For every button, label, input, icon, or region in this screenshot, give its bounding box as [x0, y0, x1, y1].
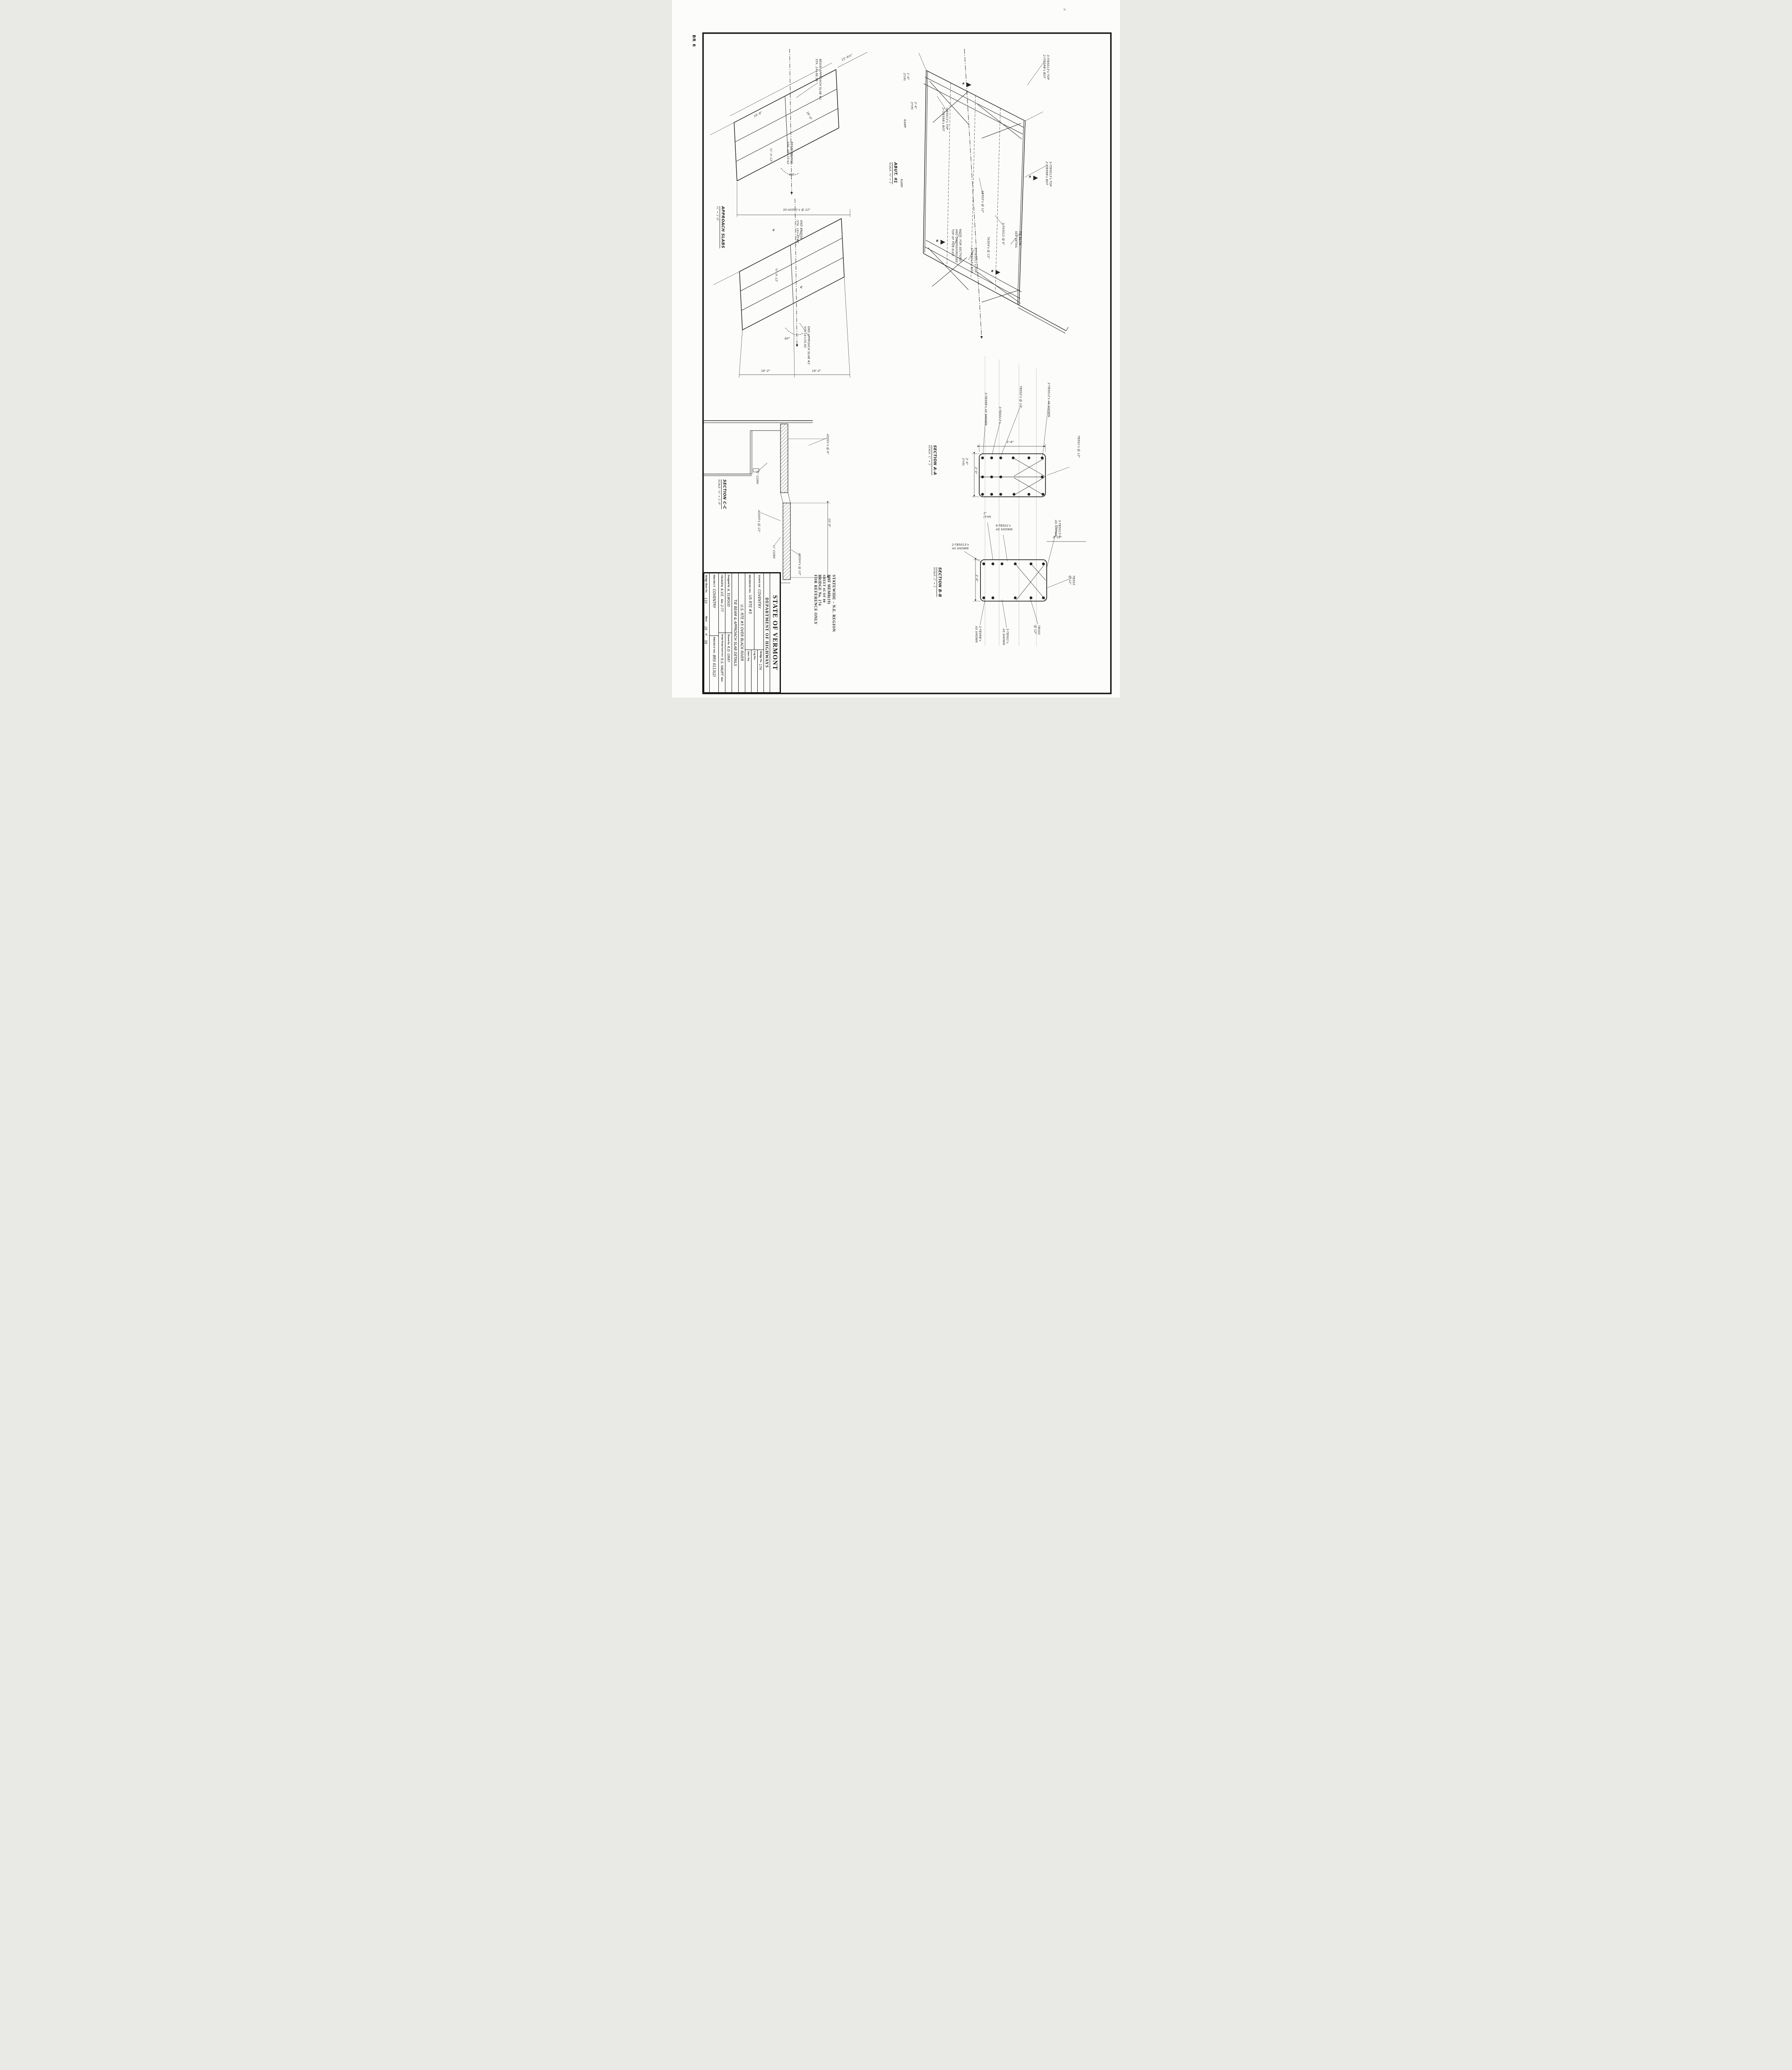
department-name: DEPARTMENT OF HIGHWAYS — [765, 598, 769, 668]
title-block: STATE OF VERMONT DEPARTMENT OF HIGHWAYS … — [703, 572, 781, 693]
label-itb-top-right: 3-ITB5013's TOP 2-ITB5RB's BOT — [1042, 55, 1050, 80]
drawing-title-1: U.S. RTE #5 OVER BLACK RIVER — [740, 604, 744, 661]
town-value: COVENTRY — [757, 589, 761, 608]
dim-b-height: 2'-6" — [975, 575, 978, 582]
label-c-as505: AS505's @ 12" — [757, 510, 761, 532]
label-b-2tb5013: 2-TB5013's AS SHOWN — [952, 543, 969, 551]
approach-plan-title: APPROACH SLABS ¾" = 1'-0" — [716, 206, 725, 248]
label-a-tb502: TB502's @ 12" — [1019, 386, 1022, 408]
drawing-title-row-1: U.S. RTE #5 OVER BLACK RIVER — [738, 573, 745, 692]
bridge-no-label: Bridge No. — [759, 651, 762, 663]
label-b-3tb5013: 3-TB5013's AS SHOWN — [1054, 520, 1061, 537]
label-b-5tb501: 5-TB501's AS SHOWN — [1002, 628, 1009, 645]
of-label: of — [705, 633, 707, 635]
tie-beam-plan — [919, 49, 1068, 339]
supervisor-label: Bridge Design Supervisor — [721, 634, 723, 657]
label-ramp-1: RAMP — [903, 119, 906, 128]
bridge-no-cell: Bridge No. 174 — [757, 650, 764, 692]
angle-label-2: 60° — [785, 337, 790, 341]
bridge-no-value: 174 — [759, 664, 763, 670]
town-cell: TOWN OF COVENTRY — [754, 573, 764, 650]
section-a-title: SECTION A-A SCALE: 1" = 1' — [928, 445, 937, 475]
dim-16-2-b: 16'-2" — [812, 369, 821, 373]
designed-value: A. ELWOOD — [727, 589, 730, 607]
check-mark: × — [1063, 7, 1066, 12]
label-itb-bottom-left: 3-ITB5011's TOP 2-ITB5013's BOT — [970, 248, 977, 273]
bridge-sheet-value: 110 — [704, 597, 708, 603]
label-c-as501: AS501's @ 6" — [826, 434, 829, 455]
project-no-label: PROJECT NO. — [713, 637, 715, 654]
abutment-plan-scale: SCALE: ¾" = 1' — [889, 162, 892, 184]
designed-cell: Designed by A. ELWOOD — [725, 573, 732, 633]
section-b-title-text: SECTION B-B — [937, 567, 942, 597]
label-tie-beam-detail: TIE BEAM SEE DETAIL — [1014, 231, 1021, 248]
label-c-cork-2: ¼" CORK — [772, 545, 776, 558]
dim-b-typ: 1" (TYP) — [983, 512, 991, 519]
label-ta5012: 2-TA5012 @ 6" — [1001, 223, 1005, 245]
designed-label: Designed by — [727, 575, 730, 587]
label-a-tb5012: 2-TB5012's AS SHOWN — [1047, 383, 1050, 417]
section-c-title-text: SECTION C-C — [721, 479, 727, 509]
project-label: PROJECT — [713, 575, 715, 587]
label-b-tb503: TB503 @ 12" — [1068, 575, 1075, 585]
town-label: TOWN OF — [758, 575, 761, 587]
supervisor-date-label: date — [721, 677, 723, 681]
label-c-as504: AS504's @ 12" — [797, 553, 801, 575]
bridge-sheet-label: Bridge Sheet No. — [705, 575, 707, 593]
drawing-sheet: BR 6 × APPROACH SLABS ¾" = 1'-0" BEGIN A… — [672, 0, 1120, 698]
project-cell: PROJECT COVENTRY — [710, 573, 718, 636]
label-end-bridge: END BRIDGE STA. 16+41.87 — [795, 220, 803, 243]
checked-date-value: 2-77 — [720, 605, 724, 612]
title-block-location-rows: TOWN OF COVENTRY HIGHWAY NO. US RTE #5 B… — [745, 573, 764, 692]
section-c-scale: SCALE: ¾" = 1'-0" — [718, 479, 721, 509]
label-b-2tb5rb: 2-TB5RB's AS SHOWN — [974, 626, 982, 643]
dim-a-height: 2'-0" — [974, 467, 978, 474]
label-ta504: TA504's @ 12" — [986, 237, 990, 259]
dim-16-2-a: 16'-2" — [761, 369, 770, 373]
checked-cell: Checked by A.V.E. date 2-77 — [719, 573, 725, 633]
section-c-title: SECTION C-C SCALE: ¾" = 1'-0" — [718, 479, 727, 509]
label-b-6tb501: 6-TB501's AS SHOWN — [996, 524, 1012, 532]
supervisor-cell: Bridge Design Supervisor R.S. HAUPT date — [719, 633, 725, 692]
label-a-tb501: TB501's @ 12" — [1077, 436, 1080, 458]
drawn-value: R.D. GRAY — [727, 646, 730, 662]
designed-drawn-row: Designed by A. ELWOOD Drawn by R.D. GRAY — [725, 573, 732, 692]
label-a-tb5013: 3-TB5013's — [998, 407, 1002, 424]
checked-supervisor-row: Checked by A.V.E. date 2-77 Bridge Desig… — [718, 573, 725, 692]
construction-lines — [985, 356, 1036, 646]
dim-typ-1: 1'-6" (TYP) — [902, 73, 910, 81]
project-row: PROJECT COVENTRY PROJECT NO. BRS 0113(2) — [709, 573, 718, 692]
title-block-agency-row: STATE OF VERMONT — [770, 573, 780, 692]
label-ab503: AB503's @ 12" — [980, 190, 984, 213]
sheet-no-value: 19 — [704, 626, 708, 631]
location-right-column: Bridge No. 174 Log Sta. Surv. Sta. — [745, 650, 764, 692]
stamp-region: STATEWIDE – N.E. REGION — [831, 575, 836, 662]
location-left-column: TOWN OF COVENTRY HIGHWAY NO. US RTE #5 — [745, 573, 764, 650]
label-itb-right: 3-ITB5013's TOP 2-ITB5RB's BOT — [1045, 161, 1052, 187]
section-b-cut-marker-2: B — [991, 270, 993, 273]
label-c-cork-1: ½" CORK — [755, 470, 759, 484]
abutment-plan-caption: ABUT. #1 SCALE: ¾" = 1' — [889, 162, 898, 184]
project-no-value: BRS 0113(2) — [712, 655, 716, 677]
drawing-title-2: TIE BEAM & APPROACH SLAB DETAILS — [733, 599, 737, 666]
project-value: COVENTRY — [712, 589, 716, 608]
dim-c-10-0: 10'-0" — [827, 518, 831, 527]
project-no-cell: PROJECT NO. BRS 0113(2) — [710, 636, 718, 692]
label-as501-bars: 33-AS501's @ 12" — [783, 208, 810, 212]
stamp-bridge-no: BRIDGE No. 174 — [817, 575, 822, 662]
corner-mark: BR 6 — [691, 35, 696, 47]
abutment-plan-caption-text: ABUT. #1 — [892, 162, 898, 184]
section-a-cut-marker-2: A — [1029, 175, 1031, 178]
dim-a-typ: 2'-6" (TYP) — [961, 458, 968, 466]
label-itb-upper-left: ITB5013's TOP 2-ITB5RB's BOT — [941, 108, 949, 131]
checked-value: A.V.E. — [720, 588, 724, 597]
label-b-tb502: TB502 @ 12" — [1033, 625, 1041, 635]
highway-label: HIGHWAY NO. — [748, 575, 751, 593]
label-ramp-2: RAMP — [899, 179, 903, 188]
stamp-sheet: SHEET 45 OF 80 — [822, 575, 826, 662]
surv-sta-label: Surv. Sta. — [747, 651, 749, 662]
supervisor-value: R.S. HAUPT — [720, 658, 724, 676]
section-a-scale: SCALE: 1" = 1' — [928, 445, 932, 475]
agency-name: STATE OF VERMONT — [771, 595, 779, 671]
section-a-title-text: SECTION A-A — [932, 445, 937, 475]
label-begin-approach-slab-1: BEGIN APPROACH SLAB #1 STA. 14+86.58 — [814, 59, 822, 100]
reference-stamp: STATEWIDE – N.E. REGION BHF MEMB(19) SHE… — [813, 575, 836, 662]
approach-slabs-plan — [710, 49, 867, 378]
section-b-linework — [964, 522, 1086, 628]
stamp-reference-only: FOR REFERENCE ONLY — [813, 575, 817, 662]
checked-date-label: date — [721, 599, 723, 604]
dim-typ-2: 2'-6" (TYP) — [910, 102, 917, 110]
sheet-number-row: Bridge Sheet No. 110 Sheet 19 of 58 — [702, 573, 709, 692]
sheet-total-value: 58 — [704, 640, 708, 644]
angle-label-1: 60° — [789, 173, 795, 177]
checked-label: Checked by — [721, 575, 723, 587]
approach-plan-title-text: APPROACH SLABS — [720, 206, 725, 248]
highway-cell: HIGHWAY NO. US RTE #5 — [745, 573, 754, 650]
section-b-cut-marker-1: B — [936, 239, 938, 243]
section-b-scale: SCALE: 1" = 1' — [933, 567, 937, 597]
log-sta-cell: Log Sta. — [751, 650, 757, 692]
drawn-label: Drawn by — [727, 634, 730, 645]
sheet-label: Sheet — [705, 616, 707, 622]
section-c-cut-marker-1: C — [773, 229, 775, 232]
section-b-title: SECTION B-B SCALE: 1" = 1' — [933, 567, 942, 597]
label-begin-bridge: BEGIN BRIDGE STA. 15+10.62 — [786, 142, 793, 164]
dim-a-width: 3'-6" — [1007, 440, 1014, 444]
label-end-approach-slab-2: END APPROACH SLAB #2 STA 16+55.92 — [803, 326, 810, 365]
highway-value: US RTE #5 — [748, 595, 752, 614]
section-c-cut-marker-2: C — [800, 286, 802, 289]
section-a-cut-marker-1: A — [962, 82, 964, 85]
stamp-memb: BHF MEMB(19) — [826, 575, 831, 662]
drawing-title-row-2: TIE BEAM & APPROACH SLAB DETAILS — [732, 573, 738, 692]
drawn-cell: Drawn by R.D. GRAY — [725, 633, 732, 692]
slope-label-2: ¼" in 12' — [774, 268, 778, 282]
slope-label-1: ¼" in 12' — [769, 148, 773, 162]
approach-plan-scale: ¾" = 1'-0" — [716, 206, 720, 248]
surv-sta-cell: Surv. Sta. — [745, 650, 751, 692]
plan-note: NOTE: FOR SECTIONS AND DIMENSIONS SEE TO… — [951, 229, 962, 263]
log-sta-label: Log Sta. — [753, 651, 756, 660]
title-block-department-row: DEPARTMENT OF HIGHWAYS — [764, 573, 770, 692]
label-a-tb5rb: 3-TB5RB's AS SHOWN — [984, 392, 988, 426]
